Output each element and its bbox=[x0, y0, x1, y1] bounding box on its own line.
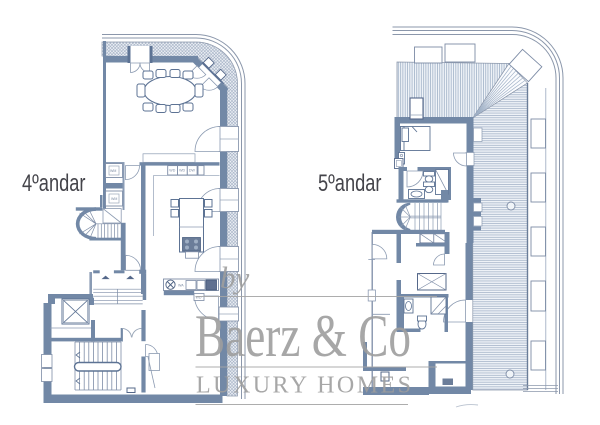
svg-text:WM: WM bbox=[110, 169, 116, 173]
svg-text:WA: WA bbox=[178, 284, 184, 288]
svg-text:Baerz & Co: Baerz & Co bbox=[195, 303, 411, 369]
svg-text:WM: WM bbox=[111, 197, 117, 201]
svg-text:by: by bbox=[220, 260, 250, 295]
svg-text:DW: DW bbox=[189, 169, 196, 173]
svg-text:WD: WD bbox=[179, 169, 185, 173]
svg-text:WD: WD bbox=[169, 169, 175, 173]
